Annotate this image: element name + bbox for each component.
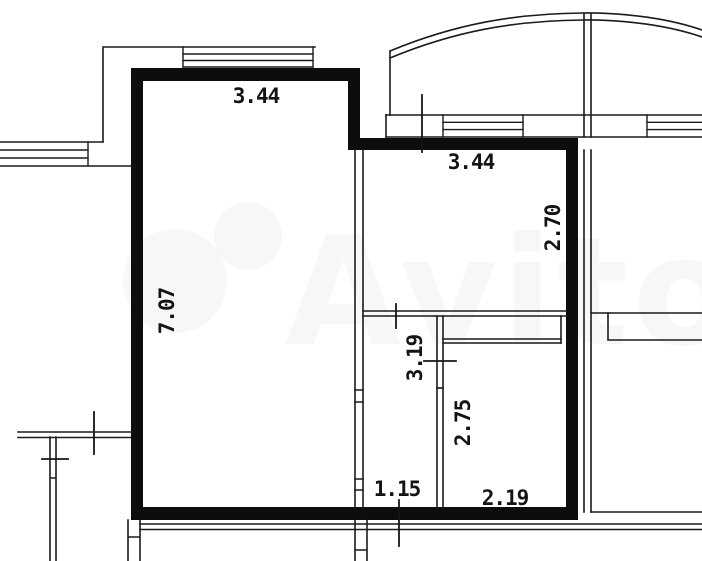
window-left-exterior bbox=[0, 142, 131, 166]
dimension-bath-depth: 2.75 bbox=[451, 399, 475, 446]
dimension-bath-width: 2.19 bbox=[482, 486, 529, 510]
window-kitchen bbox=[443, 115, 523, 137]
wall-step-connector bbox=[348, 68, 360, 150]
dimension-hall-width: 1.15 bbox=[374, 477, 421, 501]
window-top-main-room bbox=[183, 47, 313, 67]
wall-left bbox=[131, 68, 143, 520]
window-neighbor-right bbox=[647, 115, 702, 137]
dimension-main-room-width: 3.44 bbox=[233, 84, 280, 108]
watermark-text: Avito bbox=[285, 206, 702, 380]
dimension-kitchen-width: 3.44 bbox=[448, 150, 495, 174]
wall-kitchen-top bbox=[348, 138, 578, 150]
balcony-top-right bbox=[386, 13, 702, 137]
floor-plan-page: Avito bbox=[0, 0, 702, 561]
corridor-walls-bottom bbox=[128, 520, 702, 561]
dimension-kitchen-depth: 2.70 bbox=[541, 204, 565, 251]
wall-main-room-top bbox=[131, 68, 360, 81]
watermark-logo-circle-small bbox=[214, 202, 282, 270]
floor-plan-drawing: Avito bbox=[0, 0, 702, 561]
dimension-hall-depth: 3.19 bbox=[403, 334, 427, 381]
neighbor-walls-left bbox=[18, 432, 131, 561]
dimension-main-room-depth: 7.07 bbox=[155, 287, 179, 334]
wall-right bbox=[566, 138, 578, 520]
